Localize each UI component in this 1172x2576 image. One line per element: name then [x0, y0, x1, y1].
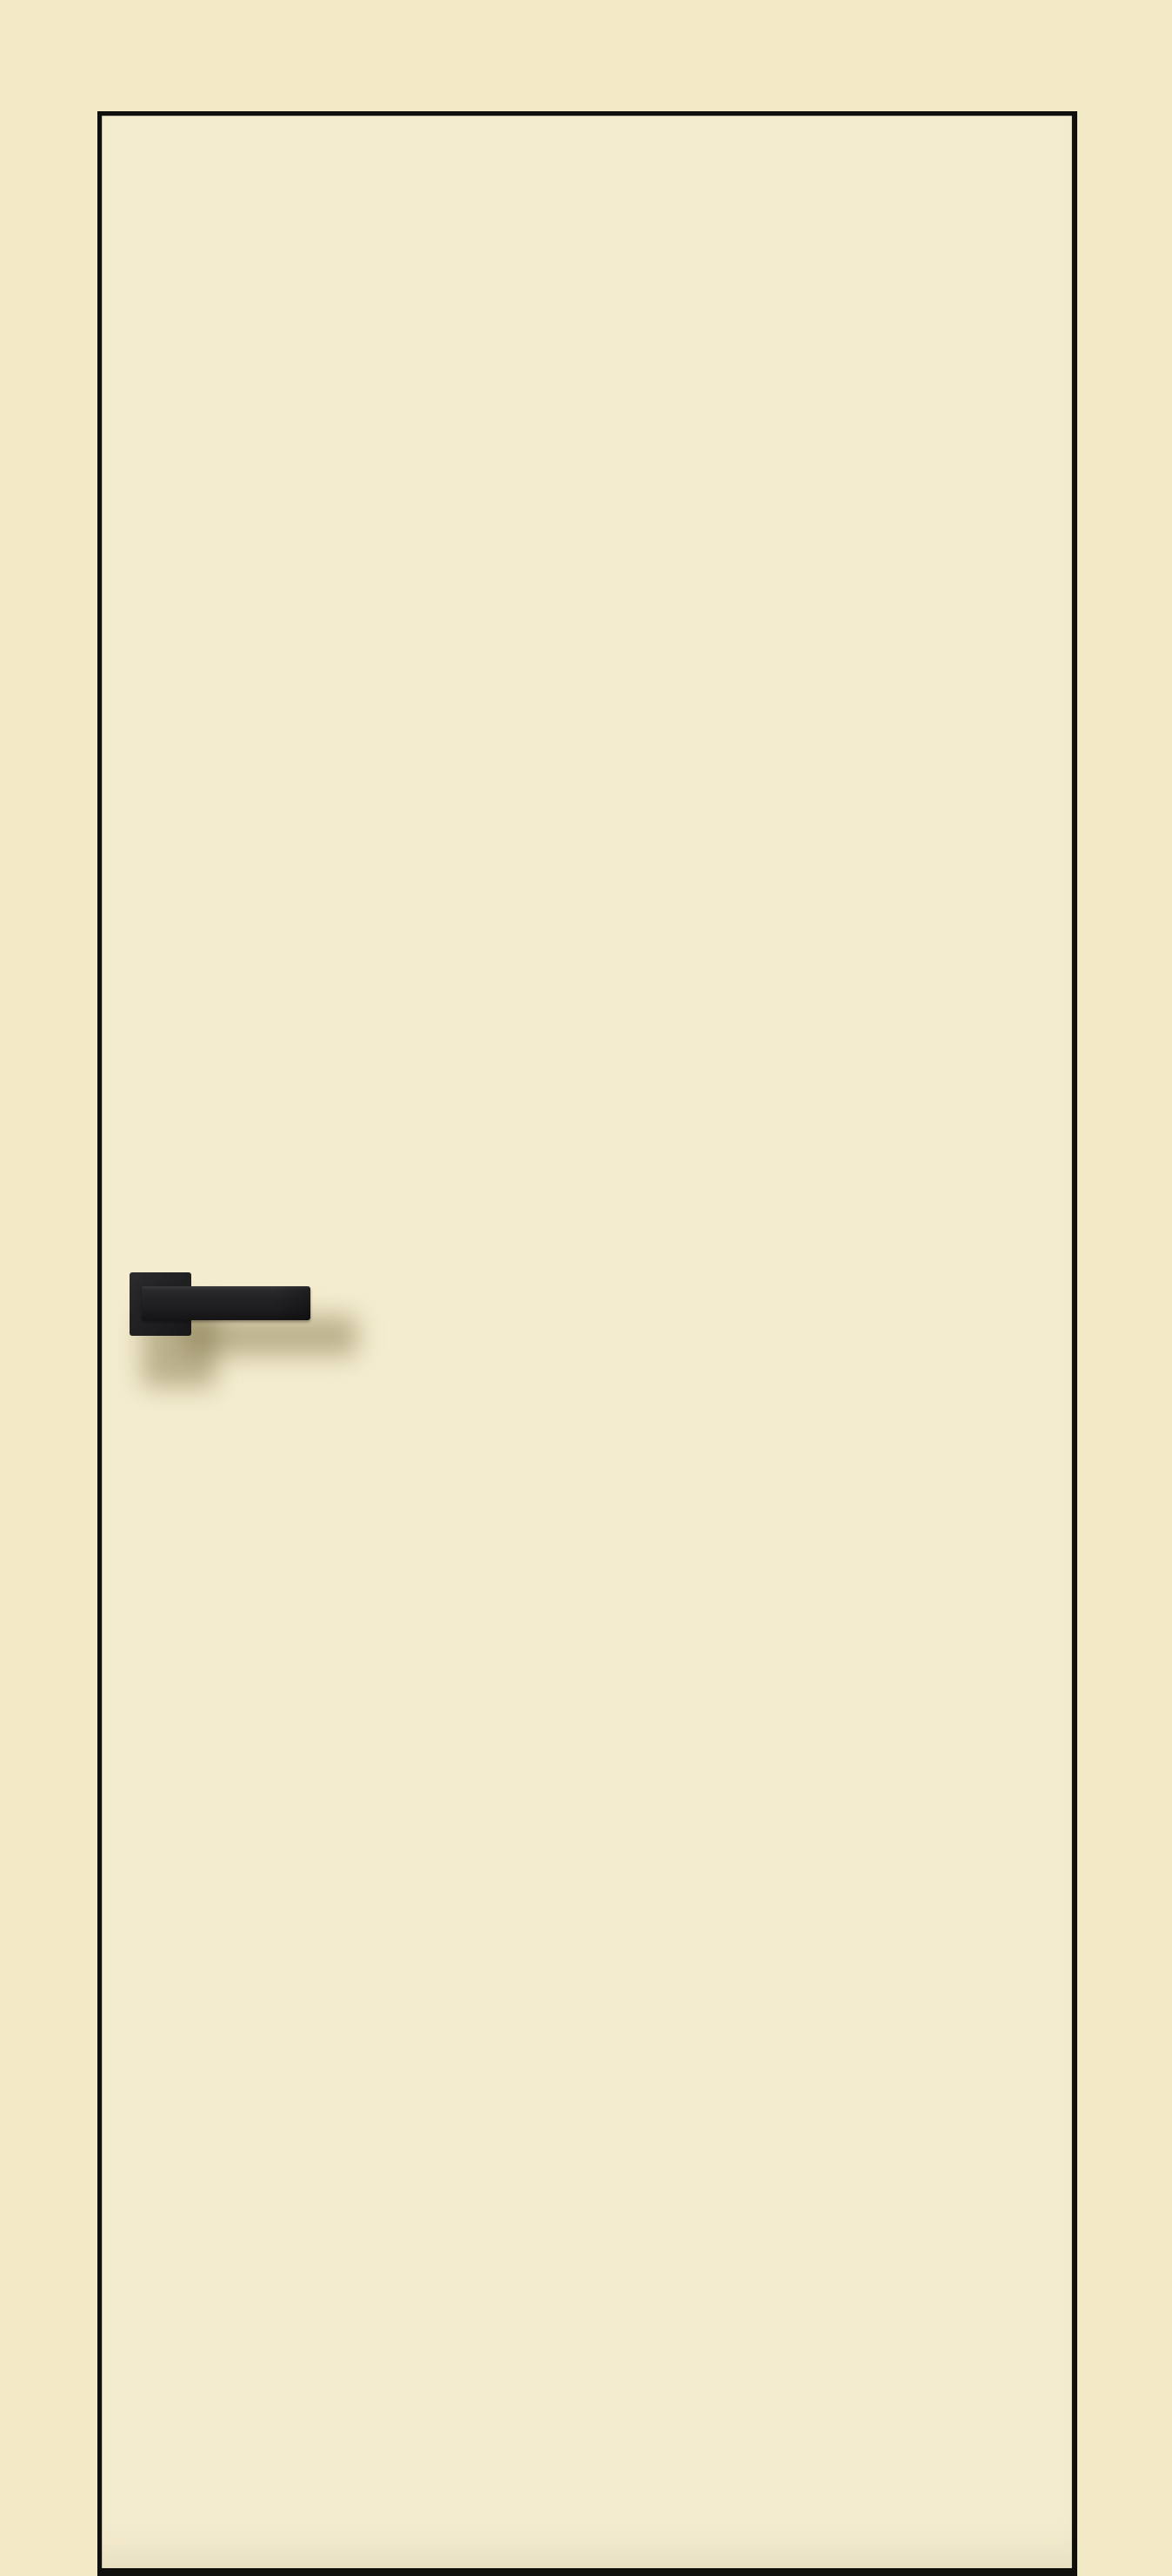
lever-shadow-blob: [183, 1316, 357, 1356]
photo-background: [0, 0, 1172, 2576]
handle-lever: [142, 1286, 310, 1320]
door-panel: [97, 111, 1077, 2576]
